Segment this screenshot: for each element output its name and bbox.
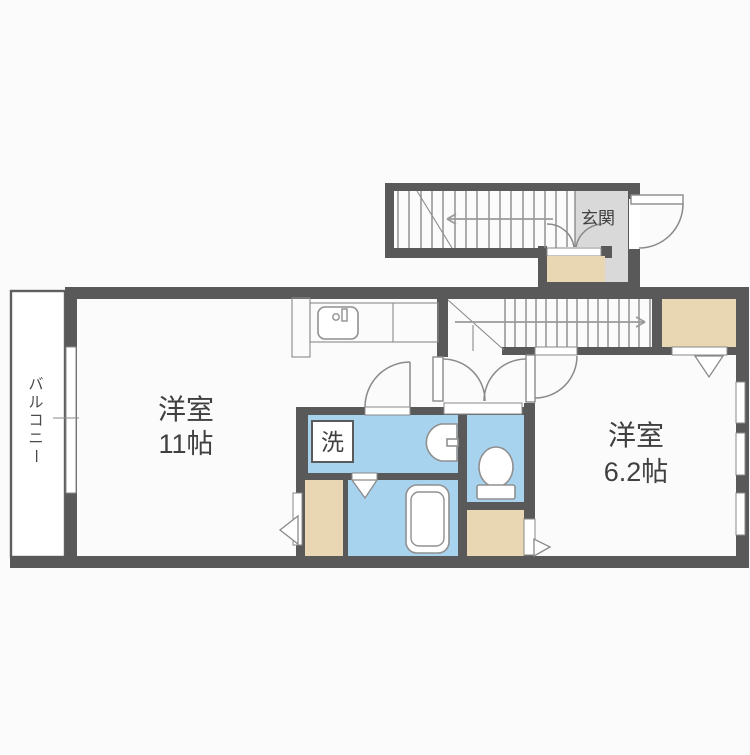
svg-text:コ: コ [28,412,43,429]
closet [467,510,524,556]
washroom-door-swing-icon [365,362,410,407]
floorplan-drawing: 玄関 バ ル コ ニ ー [0,0,750,750]
room-large-label: 洋室 11帖 [158,394,214,459]
kitchen-sink-icon [318,307,358,339]
door-opening [535,347,577,355]
bedroom-door-swing-icon [535,356,577,398]
entrance-threshold [547,248,601,256]
room-small-label: 洋室 6.2帖 [604,420,669,487]
wall [296,473,467,480]
front-door-swing-icon [629,195,683,249]
main-floor: バ ル コ ニ ー [10,287,749,568]
floorplan-canvas: 玄関 バ ル コ ニ ー [0,0,750,750]
wall [385,183,640,191]
wall [343,480,348,556]
svg-text:11帖: 11帖 [158,429,213,459]
entrance-stair-block: 玄関 [385,183,683,290]
window-icon [736,382,745,423]
wall [458,415,467,473]
window-icon [66,347,76,493]
main-staircase [448,299,650,351]
hall-double-door-swing-icon [433,355,535,402]
svg-text:洋室: 洋室 [608,420,664,451]
wall [10,556,749,568]
entrance-label: 玄関 [581,209,615,228]
wall [385,183,394,258]
svg-text:ニ: ニ [28,430,43,447]
door-opening [352,473,377,480]
wall [502,347,660,355]
folding-door-icon [695,356,723,377]
door-opening [672,347,727,355]
svg-text:6.2帖: 6.2帖 [604,457,669,487]
folding-door-icon [280,516,298,544]
closet [305,480,343,556]
wall [65,287,749,299]
toilet-icon [477,447,515,499]
kitchen-counter [292,298,438,357]
washbasin-icon [426,424,458,461]
wall [296,407,308,480]
wall [385,248,547,258]
winder-step-line [448,300,504,350]
stairs-up-arrow-icon [455,317,645,327]
door-opening [365,407,410,415]
svg-text:バ: バ [28,376,43,393]
svg-text:ー: ー [27,448,44,463]
svg-text:洋室: 洋室 [158,394,214,425]
laundry-label: 洗 [321,429,344,455]
wall [467,502,527,510]
folding-door-icon [534,539,550,556]
wall [437,297,448,357]
bathtub-icon [406,485,449,553]
window-icon [736,433,745,475]
door-opening [444,403,522,414]
wall [458,480,467,556]
balcony-label: バ ル コ ニ ー [27,376,44,464]
closet [662,299,736,347]
wall [652,287,662,355]
entrance-step [547,256,605,282]
svg-text:ル: ル [28,394,43,411]
window-icon [736,493,745,535]
